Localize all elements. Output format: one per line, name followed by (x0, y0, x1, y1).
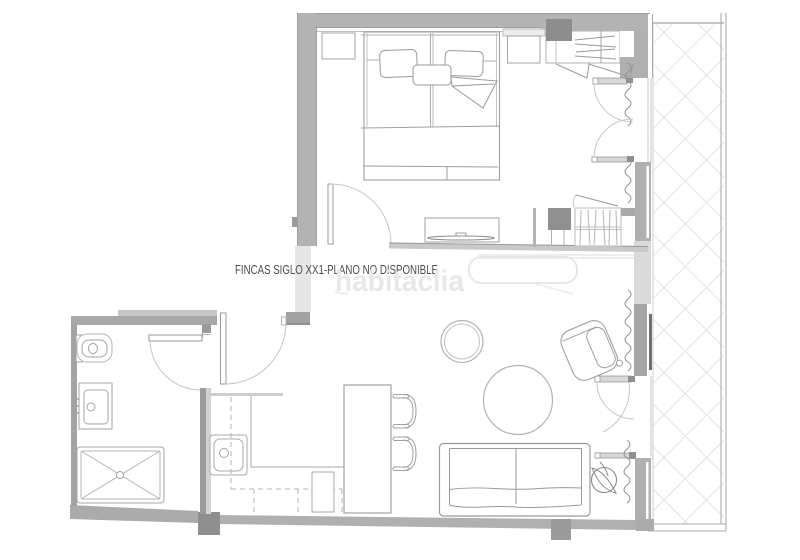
svg-text:habitaclia: habitaclia (335, 265, 464, 298)
